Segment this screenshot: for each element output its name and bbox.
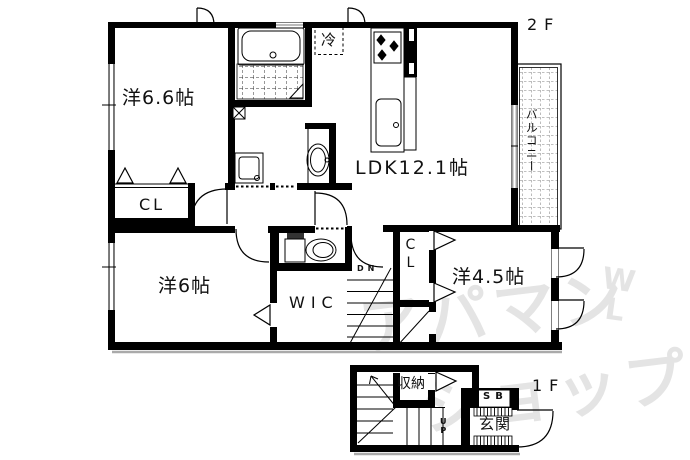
- room-label-entrance: 玄関: [479, 416, 511, 433]
- floor-plan-graphics: [0, 0, 690, 460]
- vanity-sink-icon: [307, 128, 331, 184]
- washroom: [233, 107, 331, 184]
- storage-door: [436, 372, 456, 391]
- door-room6: [236, 229, 269, 262]
- stairs-up-label: UP: [438, 417, 447, 435]
- toilet-tank: [285, 239, 305, 262]
- storage-door-opening: [428, 374, 435, 390]
- floor-label-1f: 1F: [532, 377, 565, 395]
- kitchen-sink-icon: [376, 99, 401, 146]
- duct-icon: [233, 107, 245, 119]
- room-label-closet-6-6: CL: [139, 196, 165, 214]
- refrigerator-label: 冷: [321, 32, 336, 49]
- bathroom: [237, 28, 304, 99]
- door-room66: [191, 189, 227, 225]
- wic-door: [254, 305, 270, 325]
- cl66-door-a: [117, 168, 133, 183]
- door-stairwell-2f: [351, 234, 383, 267]
- window-bathroom-top: [276, 23, 303, 28]
- stairs-down-label: DN: [357, 265, 378, 274]
- window-room6-left: [102, 243, 116, 310]
- floor-plan: アパマン ショップ WL: [0, 0, 690, 460]
- room-label-ldk: LDK12.1帖: [355, 158, 470, 179]
- room-label-storage: 収納: [397, 377, 425, 392]
- cl45-door-a: [434, 231, 455, 250]
- cl66-door-b: [170, 168, 186, 183]
- stove-icon: [374, 32, 401, 63]
- counter-return: [404, 77, 416, 150]
- door-hall-ldk: [315, 191, 347, 225]
- room-label-balcony: バルコニー: [524, 108, 537, 173]
- washing-machine-icon: [235, 153, 263, 183]
- bathtub-icon: [238, 28, 304, 65]
- cl66-front: [115, 184, 188, 188]
- floor-label-2f: 2F: [527, 16, 560, 34]
- toilet-control: [287, 233, 304, 239]
- window-balcony-door: [511, 105, 518, 188]
- room-label-western-6: 洋6帖: [158, 276, 211, 297]
- window-room66-left: [102, 64, 116, 150]
- shoe-box-label: SB: [483, 391, 508, 402]
- window-swing-room45-b: [556, 300, 584, 329]
- window-swing-room45-a: [556, 248, 584, 277]
- entrance-tile-bottom: [474, 436, 512, 446]
- door-entrance-1f: [517, 410, 553, 447]
- balcony: [516, 64, 561, 229]
- toilet: [285, 233, 336, 262]
- room-label-western-6-6: 洋6.6帖: [122, 88, 195, 109]
- room-label-wic: WIC: [289, 294, 339, 312]
- sliding-thresholds: [236, 187, 346, 229]
- room-label-western-4-5: 洋4.5帖: [452, 267, 525, 288]
- bath-tile-floor: [237, 64, 303, 99]
- room-label-closet-4-5: CL: [402, 237, 417, 273]
